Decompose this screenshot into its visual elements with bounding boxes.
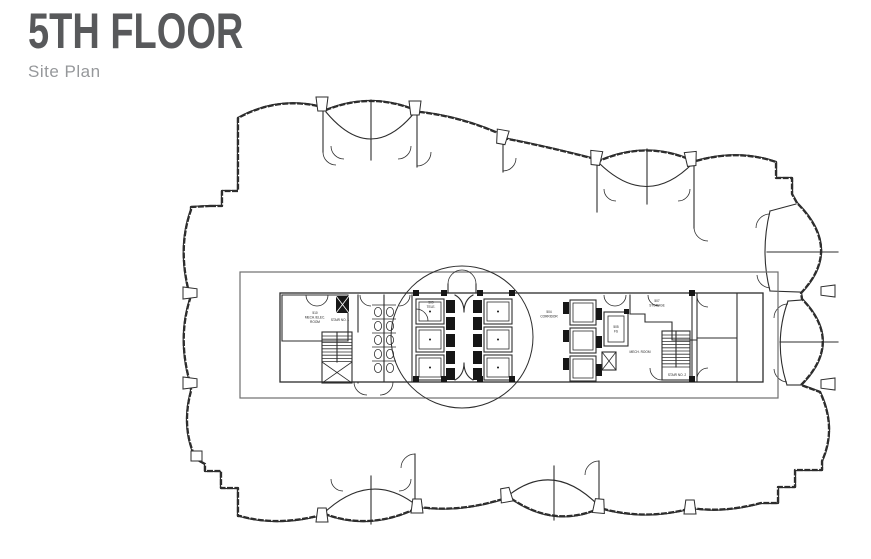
svg-text:509: 509 [428,301,434,305]
svg-text:MECH. ROOM: MECH. ROOM [629,350,650,354]
svg-text:505: 505 [613,325,619,329]
svg-text:FS: FS [614,329,618,333]
svg-text:504: 504 [546,310,552,314]
floor-plan: 510 MECH./ELEC. ROOM STAIR NO. 1 [0,0,871,559]
wall-block [191,451,202,461]
svg-text:TELE.: TELE. [427,305,436,309]
svg-text:CORRIDOR: CORRIDOR [540,314,558,318]
svg-text:STAIR NO. 2: STAIR NO. 2 [668,373,687,377]
svg-text:510: 510 [312,311,318,315]
svg-text:507: 507 [654,299,660,303]
svg-text:STORAGE: STORAGE [649,303,665,307]
svg-text:ROOM: ROOM [310,320,320,324]
svg-text:MECH./ELEC.: MECH./ELEC. [305,315,325,319]
svg-text:STAIR NO. 1: STAIR NO. 1 [331,318,350,322]
site-plan-page: 5TH FLOOR Site Plan [0,0,871,559]
